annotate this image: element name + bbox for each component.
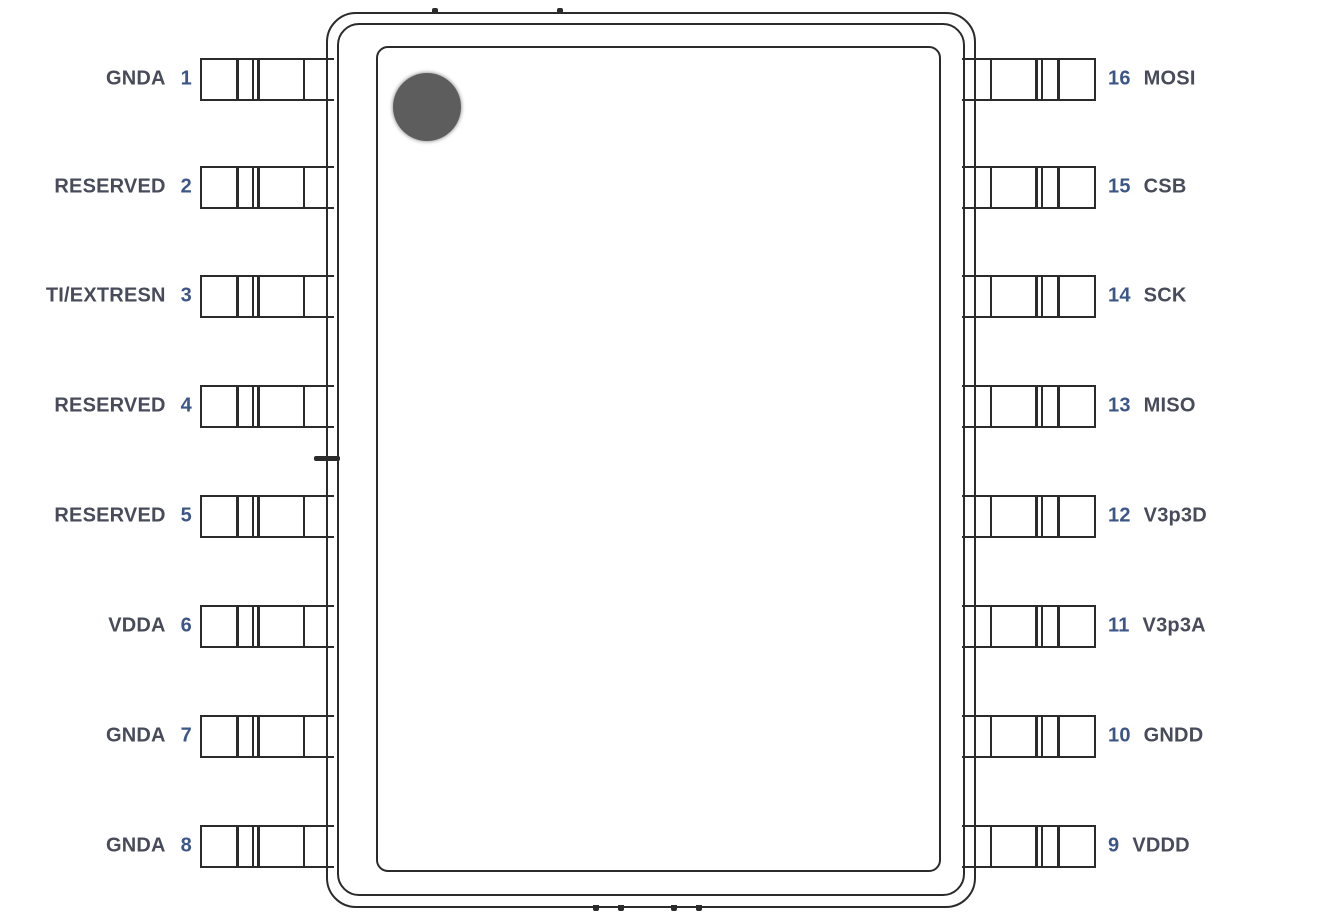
pin-lead-divider xyxy=(1057,497,1060,536)
pin-number-label: 16 xyxy=(1108,68,1131,91)
pin-label: 14 SCK xyxy=(1108,285,1186,308)
ic-pinout-diagram: GNDA 1 RESERVED 2 TI/EXTRESN 3 xyxy=(0,0,1320,919)
mold-mark-bottom-3 xyxy=(671,905,677,911)
pin-lead-divider xyxy=(1057,277,1060,316)
pin-lead-divider xyxy=(1041,277,1044,316)
pin-lead-divider xyxy=(1035,827,1038,866)
pin-lead-divider xyxy=(1035,717,1038,756)
mold-mark-top-1 xyxy=(432,8,438,14)
pin-number-label: 9 xyxy=(1108,835,1119,858)
pin-number-label: 11 xyxy=(1108,615,1130,638)
pin-name-label: VDDD xyxy=(1132,835,1189,858)
pin-lead-box xyxy=(962,275,1096,318)
pin-lead-divider xyxy=(1041,717,1044,756)
pin-number-label: 13 xyxy=(1108,395,1131,418)
pin-lead-divider xyxy=(990,60,993,99)
pin-label: 10 GNDD xyxy=(1108,725,1203,748)
pin-name-label: GNDD xyxy=(1144,725,1204,748)
pin-lead-divider xyxy=(1041,827,1044,866)
pin-lead-divider xyxy=(1041,60,1044,99)
pin-name-label: MOSI xyxy=(1144,68,1196,91)
pin-label: 12 V3p3D xyxy=(1108,505,1207,528)
pin-lead-divider xyxy=(1057,717,1060,756)
pin-label: 11 V3p3A xyxy=(1108,615,1206,638)
pin-lead-box xyxy=(962,385,1096,428)
pin-lead-divider xyxy=(1035,607,1038,646)
pin-lead-divider xyxy=(1041,168,1044,207)
pin-lead-divider xyxy=(1035,387,1038,426)
pin-lead-box xyxy=(962,58,1096,101)
pin-label: 15 CSB xyxy=(1108,176,1186,199)
pin-lead-divider xyxy=(1057,168,1060,207)
pin-number-label: 12 xyxy=(1108,505,1131,528)
pin-lead-divider xyxy=(990,827,993,866)
pin-lead-divider xyxy=(1035,60,1038,99)
pin1-indicator-dot xyxy=(393,73,461,141)
edge-tick-mark xyxy=(314,456,340,461)
pin-lead-box xyxy=(962,166,1096,209)
pin-name-label: V3p3A xyxy=(1143,615,1206,638)
pin-lead-divider xyxy=(990,277,993,316)
pin-lead-divider xyxy=(1057,387,1060,426)
mold-mark-bottom-4 xyxy=(696,905,702,911)
mold-mark-bottom-1 xyxy=(593,905,599,911)
pin-lead-divider xyxy=(1057,60,1060,99)
pin-name-label: MISO xyxy=(1144,395,1196,418)
pin-number-label: 10 xyxy=(1108,725,1131,748)
pin-label: 16 MOSI xyxy=(1108,68,1196,91)
pin-name-label: SCK xyxy=(1144,285,1187,308)
pin-lead-box xyxy=(962,825,1096,868)
mold-mark-bottom-2 xyxy=(618,905,624,911)
pin-lead-divider xyxy=(1041,607,1044,646)
pin-lead-divider xyxy=(990,168,993,207)
pin-lead-divider xyxy=(1041,497,1044,536)
pin-label: 13 MISO xyxy=(1108,395,1196,418)
pin-lead-divider xyxy=(990,607,993,646)
mold-mark-top-2 xyxy=(557,8,563,14)
pin-lead-divider xyxy=(990,497,993,536)
pin-lead-divider xyxy=(1035,277,1038,316)
pin-name-label: CSB xyxy=(1144,176,1187,199)
pin-lead-divider xyxy=(1035,497,1038,536)
pin-lead-box xyxy=(962,605,1096,648)
pin-lead-divider xyxy=(990,717,993,756)
chip-body-top-face xyxy=(376,46,941,872)
pin-lead-box xyxy=(962,715,1096,758)
pin-lead-divider xyxy=(990,387,993,426)
pin-lead-box xyxy=(962,495,1096,538)
pin-lead-divider xyxy=(1057,827,1060,866)
pin-lead-divider xyxy=(1041,387,1044,426)
pin-label: 9 VDDD xyxy=(1108,835,1190,858)
pin-lead-divider xyxy=(1057,607,1060,646)
pin-name-label: V3p3D xyxy=(1144,505,1207,528)
pin-lead-divider xyxy=(1035,168,1038,207)
pin-number-label: 15 xyxy=(1108,176,1131,199)
pin-number-label: 14 xyxy=(1108,285,1131,308)
